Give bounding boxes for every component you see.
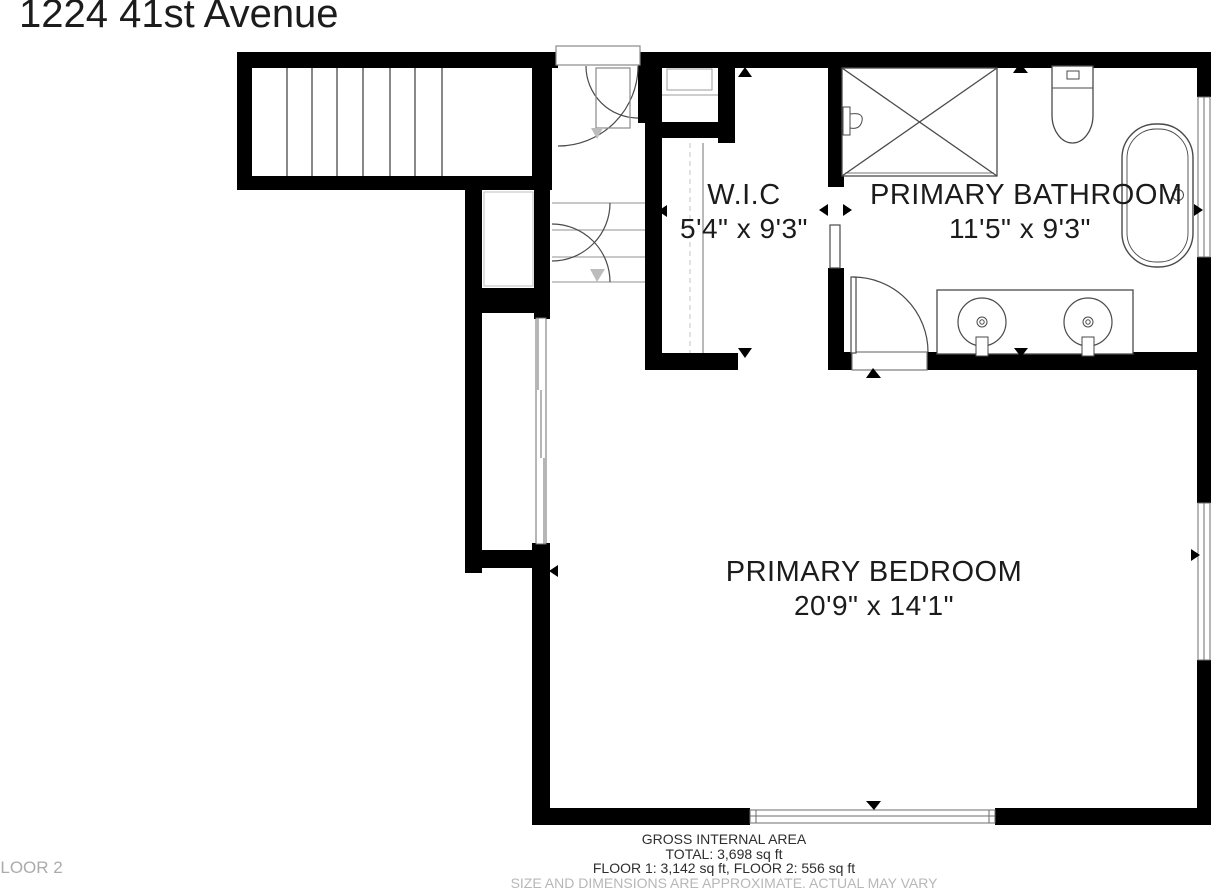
- wall: [645, 123, 662, 370]
- wall: [718, 65, 735, 143]
- wall: [237, 176, 552, 190]
- walls: [237, 52, 1211, 825]
- wall: [638, 65, 662, 123]
- room-dimensions: 11'5" x 9'3": [870, 212, 1170, 245]
- door-leaf: [851, 277, 856, 353]
- sink-drain: [980, 320, 984, 324]
- wall: [927, 352, 1211, 370]
- room-dimensions: 5'4" x 9'3": [594, 212, 894, 245]
- wall: [828, 268, 844, 354]
- wall: [237, 52, 558, 68]
- staircase-upper-flight: [287, 68, 442, 176]
- door-leaf: [596, 68, 630, 128]
- room-name: W.I.C: [594, 179, 894, 212]
- gross-internal-area-label: GROSS INTERNAL AREA: [374, 832, 1074, 847]
- wall: [465, 188, 482, 573]
- understairs-closet: [484, 192, 533, 286]
- wall: [477, 288, 550, 313]
- room-name: PRIMARY BEDROOM: [724, 556, 1024, 589]
- stair-direction-arrow: [590, 269, 605, 282]
- toilet: [1052, 66, 1093, 143]
- area-summary: GROSS INTERNAL AREA TOTAL: 3,698 sq ft F…: [374, 832, 1074, 888]
- marker-left: [549, 565, 558, 577]
- floor-areas: FLOOR 1: 3,142 sq ft, FLOOR 2: 556 sq ft: [374, 861, 1074, 876]
- disclaimer: SIZE AND DIMENSIONS ARE APPROXIMATE. ACT…: [374, 876, 1074, 888]
- wall: [532, 52, 552, 190]
- entry-door-threshold: [556, 46, 640, 65]
- page-title: 1224 41st Avenue: [19, 0, 339, 37]
- shower-valve: [843, 107, 850, 135]
- room-label-primary-bathroom: PRIMARY BATHROOM 11'5" x 9'3": [870, 179, 1170, 245]
- floor-plan-graphics: [0, 0, 1211, 888]
- room-label-primary-bedroom: PRIMARY BEDROOM 20'9" x 14'1": [724, 556, 1024, 622]
- room-name: PRIMARY BATHROOM: [870, 179, 1170, 212]
- sink-drain: [1086, 320, 1090, 324]
- wall: [1197, 257, 1211, 503]
- toilet-flush-button: [1067, 71, 1079, 79]
- wall: [662, 122, 718, 138]
- vanity: [937, 290, 1133, 356]
- wall: [645, 353, 738, 370]
- floor-plan: 1224 41st Avenue W.I.C 5'4" x 9'3" PRIMA…: [0, 0, 1211, 888]
- wic-closet-rod: [690, 143, 703, 353]
- marker-down: [866, 801, 881, 810]
- door-swing-arc: [853, 277, 928, 352]
- floor-label: FLOOR 2: [0, 858, 63, 878]
- bathroom-door-threshold: [852, 352, 927, 370]
- entry-niche: [662, 69, 718, 95]
- wall: [465, 550, 537, 568]
- room-label-wic: W.I.C 5'4" x 9'3": [594, 179, 894, 245]
- shower: [842, 68, 997, 176]
- wall: [532, 543, 550, 825]
- wall: [1197, 52, 1211, 97]
- room-dimensions: 20'9" x 14'1": [724, 589, 1024, 622]
- marker-up: [738, 67, 752, 77]
- sink-faucet: [976, 337, 988, 356]
- marker-down: [738, 348, 752, 358]
- wall: [995, 808, 1211, 825]
- wall: [237, 52, 252, 190]
- niche-shelf: [667, 69, 712, 90]
- total-area: TOTAL: 3,698 sq ft: [374, 847, 1074, 862]
- wall: [532, 808, 750, 825]
- closet-inner-outline: [484, 192, 533, 286]
- wall: [1197, 660, 1211, 825]
- wall: [828, 352, 854, 370]
- sink-faucet: [1082, 337, 1094, 356]
